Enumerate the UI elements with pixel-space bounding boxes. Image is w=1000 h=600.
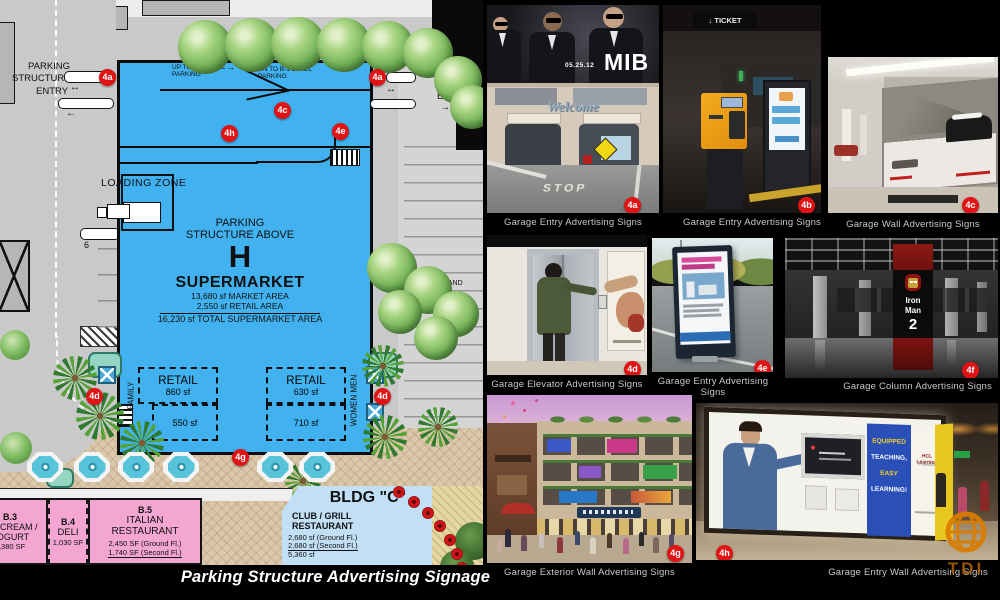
mib-billboard: 05.25.12 MIB xyxy=(487,5,659,83)
stop-road-marking: STOP xyxy=(542,182,589,195)
retail-label: RETAIL xyxy=(158,375,197,387)
family-restroom-label: FAMILY xyxy=(127,366,136,426)
flower xyxy=(408,496,420,508)
left-arrow-icon: ← xyxy=(66,108,76,119)
wall-billboard xyxy=(882,78,998,194)
mib-title: MIB xyxy=(604,49,649,76)
creation-poster xyxy=(607,251,645,351)
photo-4d-elevator-ad: 4d xyxy=(487,235,647,375)
page-title: Parking Structure Advertising Signage xyxy=(168,568,503,587)
supermarket-label: SUPERMARKET xyxy=(130,274,350,292)
globe-icon xyxy=(943,510,989,554)
photo-badge-4e: 4e xyxy=(754,360,771,372)
building-b4: B.4 DELI 1,030 SF xyxy=(48,498,88,565)
entry-gate-bar xyxy=(386,72,416,83)
right-arrow-icon: → xyxy=(440,102,450,113)
entry-left-label: ENTRY xyxy=(36,87,68,97)
retail-sf: 630 sf xyxy=(294,387,319,397)
photo-4c-wall-ad: 4c xyxy=(828,57,998,213)
walking-person xyxy=(936,473,946,507)
deck-line xyxy=(160,89,372,91)
palm-tree xyxy=(363,415,407,459)
smartboard xyxy=(801,433,865,479)
call-button-panel xyxy=(598,295,607,309)
plan-marker-4a: 4a xyxy=(99,69,116,86)
building-c-areas: 2,680 sf (Ground Fl.) 2,680 sf (Second F… xyxy=(288,534,358,559)
page: 6 17 LOADING ZONE PARKING STRUCTURE ABOV… xyxy=(0,0,1000,600)
stair-core xyxy=(330,149,360,166)
rooftop-block xyxy=(142,0,230,16)
flower xyxy=(444,534,456,546)
mall-sign xyxy=(577,507,641,518)
building-id: B.4 xyxy=(61,517,75,527)
building-b5: B.5 ITALIAN RESTAURANT 2,450 SF (Ground … xyxy=(88,498,202,565)
photo-badge-4h: 4h xyxy=(716,545,733,560)
entry-left-label: STRUCTURE xyxy=(12,74,71,84)
backlit-billboard: EQUIPPED TEACHING, EASY LEARNING! HCL Le… xyxy=(704,407,946,541)
photo-caption-4a: Garage Entry Advertising Signs xyxy=(487,217,659,228)
flower xyxy=(393,486,405,498)
machine-pedestal xyxy=(707,149,743,209)
car-in-ad xyxy=(946,114,992,142)
walking-person xyxy=(980,481,989,511)
entry-gate-bar xyxy=(370,99,416,109)
photo-badge-4a: 4a xyxy=(624,197,641,213)
deck-band xyxy=(543,489,692,505)
tdi-logo: TDI xyxy=(934,510,998,579)
building-id: B.5 xyxy=(138,505,152,515)
ironman-text: Man xyxy=(893,306,933,315)
photo-4g-mall-exterior: 4g xyxy=(487,395,692,563)
structure-letter: H xyxy=(130,241,350,274)
left-building xyxy=(0,22,15,104)
building-id: B.3 xyxy=(3,512,17,522)
retail-sf: 550 sf xyxy=(173,418,198,428)
photo-caption-4f: Garage Column Advertising Signs xyxy=(785,381,998,392)
photo-4f-column-ad: Iron Man 2 4f xyxy=(785,238,998,378)
total-area: 16,230 sf TOTAL SUPERMARKET AREA xyxy=(130,315,350,325)
left-building xyxy=(487,423,537,537)
photo-4e-outdoor-totem: 4e xyxy=(652,238,773,372)
drive-aisle-elbow xyxy=(256,130,336,163)
stop-sign xyxy=(583,155,592,164)
truck-icon xyxy=(97,204,131,221)
entry-left-label: PARKING xyxy=(28,62,70,72)
person xyxy=(535,263,595,367)
ironman-helmet xyxy=(905,274,921,291)
skylight-box xyxy=(98,366,116,384)
driveway-bar xyxy=(80,228,120,240)
retail-label: RETAIL xyxy=(286,375,325,387)
tree xyxy=(414,316,458,360)
photo-caption-4d: Garage Elevator Advertising Signs xyxy=(487,379,647,390)
flower xyxy=(434,520,446,532)
garage-facade: Welcome xyxy=(487,83,659,165)
retail-area: 2,550 sf RETAIL AREA xyxy=(130,302,350,311)
palm-tree xyxy=(362,345,404,387)
tree xyxy=(178,20,232,74)
flower xyxy=(451,548,463,560)
building-c-text: CLUB / GRILL RESTAURANT xyxy=(292,512,353,532)
presenter-man xyxy=(717,420,803,531)
plan-marker-4a: 4a xyxy=(369,69,386,86)
plan-marker-4h: 4h xyxy=(221,125,238,142)
garage-interior xyxy=(828,87,890,187)
entry-arch xyxy=(505,124,561,165)
photo-4b-ticket-kiosk: ↓ TICKET 4b xyxy=(663,5,821,213)
women-men-restroom-label: WOMEN MEN xyxy=(350,366,359,436)
photo-caption-4c: Garage Wall Advertising Signs xyxy=(828,219,998,230)
retail-suite: RETAIL 630 sf xyxy=(266,367,346,404)
parked-vehicle xyxy=(834,145,858,156)
deck-band xyxy=(543,437,692,455)
site-plan: 6 17 LOADING ZONE PARKING STRUCTURE ABOV… xyxy=(0,0,483,565)
deck-band xyxy=(543,463,692,481)
two-way-arrow-icon: ↔ xyxy=(70,82,80,93)
structure-label: PARKING STRUCTURE ABOVE xyxy=(130,217,350,241)
blue-panel: EQUIPPED TEACHING, EASY LEARNING! xyxy=(867,423,911,537)
retail-sf: 710 sf xyxy=(294,418,319,428)
column xyxy=(813,276,827,340)
photo-badge-4b: 4b xyxy=(798,197,815,213)
photo-badge-4d: 4d xyxy=(624,361,641,375)
retail-suite: RETAIL 860 sf xyxy=(138,367,218,404)
parking-facade xyxy=(535,421,692,537)
left-building-x xyxy=(0,240,30,312)
bush xyxy=(0,330,30,360)
plan-marker-4g: 4g xyxy=(232,449,249,466)
tdi-text: TDI xyxy=(934,559,998,579)
ad-totem xyxy=(763,80,811,192)
ticket-sign: ↓ TICKET xyxy=(693,13,757,28)
flower xyxy=(422,507,434,519)
photo-badge-4g: 4g xyxy=(667,545,684,562)
ironman-column: Iron Man 2 xyxy=(893,244,933,370)
drive-aisle-line xyxy=(118,162,258,164)
photo-caption-4b: Garage Entry Advertising Signs xyxy=(663,217,821,228)
photo-caption-4g: Garage Exterior Wall Advertising Signs xyxy=(487,567,692,578)
bush xyxy=(0,432,32,464)
digital-totem xyxy=(672,245,736,359)
photo-badge-4c: 4c xyxy=(962,197,979,213)
photo-badge-4f: 4f xyxy=(962,362,979,378)
exit-sign xyxy=(954,451,970,458)
plan-marker-4c: 4c xyxy=(274,102,291,119)
mib-date: 05.25.12 xyxy=(565,62,594,69)
loading-zone-label: LOADING ZONE xyxy=(101,178,233,190)
structure-text-block: PARKING STRUCTURE ABOVE H SUPERMARKET 13… xyxy=(130,217,350,325)
palm-tree xyxy=(418,407,458,447)
retail-sf: 860 sf xyxy=(166,387,191,397)
street-centerline xyxy=(55,0,57,338)
ironman-text: Iron xyxy=(893,296,933,305)
building-b3: B.3 ICE CREAM / YOGURT 1,380 SF xyxy=(0,498,48,565)
two-way-arrow-icon: ↔ xyxy=(386,84,396,95)
plan-marker-4e: 4e xyxy=(332,123,349,140)
plan-marker-4d: 4d xyxy=(374,388,391,405)
ironman-number: 2 xyxy=(893,316,933,333)
ticket-machine xyxy=(701,93,747,149)
hall-floor xyxy=(487,361,647,375)
ceiling-beams xyxy=(785,238,998,270)
retail-suite: 710 sf xyxy=(266,404,346,441)
plan-marker-4d: 4d xyxy=(86,388,103,405)
red-umbrella xyxy=(501,503,535,514)
stall-count-6: 6 xyxy=(84,241,89,251)
photo-4a-garage-entry: 05.25.12 MIB Welcome STOP 4a xyxy=(487,5,659,213)
